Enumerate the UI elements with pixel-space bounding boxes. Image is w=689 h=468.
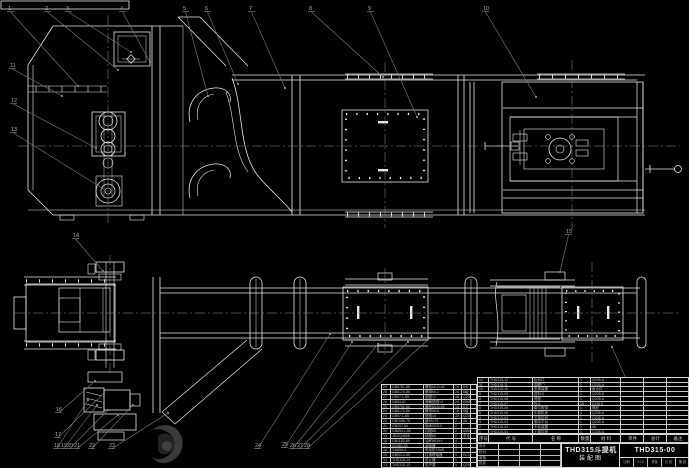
signature-cell	[520, 461, 541, 467]
leader-dot	[284, 87, 286, 89]
callout-number: 1	[8, 6, 11, 12]
scale-cell: 比例	[620, 458, 634, 468]
bom-header-cell: 名 称	[533, 435, 579, 443]
callout-number: 15	[566, 229, 572, 235]
bom-cell: 13	[382, 463, 391, 468]
leader-dot	[103, 392, 105, 394]
leader-dot	[102, 270, 104, 272]
callout-number: 22	[89, 443, 95, 449]
leader-dot	[407, 341, 409, 343]
callout-number: 16	[56, 407, 62, 413]
bom-cell: 防护罩	[424, 463, 454, 468]
leader-line	[59, 381, 96, 413]
leader-dot	[87, 399, 89, 401]
callout-number: 17	[55, 432, 61, 438]
callout-number: 9	[368, 6, 371, 12]
callout-number: 13	[11, 127, 17, 133]
drawing-number-box: THD315-00 比例1:10重量共 张第 张	[619, 444, 689, 467]
callout-number: 5	[183, 6, 186, 12]
callout-number: 25	[282, 442, 288, 448]
leader-dot	[559, 271, 561, 273]
leader-line	[14, 104, 97, 148]
title-area: THD315斗提机 装配图	[561, 444, 620, 467]
leader-dot	[77, 85, 79, 87]
title-block: 设计校对审核批准 THD315斗提机 装配图 THD315-00 比例1:10重…	[477, 443, 689, 468]
leader-line	[312, 12, 384, 77]
leader-dot	[429, 337, 431, 339]
leader-line	[560, 235, 569, 272]
leader-dot	[382, 76, 384, 78]
callout-number: 7	[249, 6, 252, 12]
bom-table-assemblies: 12THD315-12出料口1Q235-A11THD315-11观察门1Q235…	[477, 377, 689, 434]
leader-dot	[132, 404, 134, 406]
leader-dot	[61, 95, 63, 97]
leader-dot	[329, 333, 331, 335]
bom-header-cell: 材 料	[591, 435, 621, 443]
callout-number: 8	[309, 6, 312, 12]
bom-table-standard-parts: 29GB5782-86螺栓M12×40248.828GB6170-86螺母M12…	[381, 384, 477, 468]
bom-header-row: 序号代 号名 称数量材 料单件总计备注	[477, 434, 689, 443]
leader-dot	[237, 83, 239, 85]
callout-number: 28	[304, 443, 310, 449]
bom-cell: Q235-A	[462, 463, 471, 468]
callout-number: 23	[109, 443, 115, 449]
callout-number: 6	[205, 6, 208, 12]
bom-header-cell: 单件	[621, 435, 644, 443]
leader-dot	[351, 341, 353, 343]
leader-dot	[95, 147, 97, 149]
scale-cell: 1:10	[634, 458, 648, 468]
leader-line	[285, 342, 353, 448]
callout-number: 11	[10, 63, 16, 69]
leader-line	[58, 393, 105, 438]
leader-dot	[94, 380, 96, 382]
bom-cell: 1	[454, 463, 462, 468]
leader-line	[76, 239, 104, 271]
swirl-watermark	[152, 425, 183, 463]
leader-dot	[207, 95, 209, 97]
callout-number: 14	[73, 233, 79, 239]
drawing-number: THD315-00	[620, 444, 689, 457]
leader-dot	[167, 412, 169, 414]
callout-number: 18	[54, 443, 60, 449]
callout-number: 27	[297, 443, 303, 449]
leader-dot	[377, 343, 379, 345]
leader-dot	[611, 346, 613, 348]
leader-dot	[149, 61, 151, 63]
scale-strip: 比例1:10重量共 张第 张	[620, 457, 689, 468]
doc-type: 装配图	[562, 455, 620, 463]
callout-number: 10	[483, 6, 489, 12]
leader-dot	[107, 409, 109, 411]
callout-number: 21	[74, 443, 80, 449]
callout-number: 2	[45, 6, 48, 12]
bom-header-cell: 备注	[667, 435, 689, 443]
bom-header-cell: 总计	[644, 435, 667, 443]
leader-line	[208, 12, 239, 84]
leader-line	[252, 12, 286, 88]
cad-drawing-page: 1234567891011121314151617181920212223242…	[0, 0, 689, 468]
scale-cell: 重量	[648, 458, 662, 468]
leader-dot	[117, 69, 119, 71]
signature-cell	[541, 461, 561, 467]
leader-line	[486, 12, 537, 97]
scale-cell: 共 张	[662, 458, 676, 468]
leader-dot	[101, 187, 103, 189]
leader-dot	[117, 414, 119, 416]
leader-line	[371, 12, 418, 117]
leader-dot	[416, 116, 418, 118]
signature-cell	[499, 461, 520, 467]
bom-header-cell: 数量	[579, 435, 591, 443]
leader-line	[258, 334, 331, 449]
product-title: THD315斗提机	[562, 446, 620, 455]
frame-corner	[1, 1, 129, 9]
bom-header-cell: 序号	[478, 435, 489, 443]
callout-number: 20	[67, 443, 73, 449]
drawing-geometry	[1, 1, 682, 440]
leader-line	[11, 12, 79, 86]
bom-cell: THD315-13	[391, 463, 424, 468]
leader-line	[48, 12, 119, 70]
leader-line	[14, 133, 103, 188]
leader-line	[186, 12, 209, 96]
bom-header-cell: 代 号	[489, 435, 533, 443]
signature-grid: 设计校对审核批准	[478, 444, 561, 467]
callout-number: 4	[120, 6, 123, 12]
callout-number: 26	[290, 443, 296, 449]
scale-cell: 第 张	[676, 458, 689, 468]
leader-dot	[130, 51, 132, 53]
leader-dot	[535, 96, 537, 98]
callout-number: 24	[255, 443, 261, 449]
callout-number: 12	[11, 98, 17, 104]
leader-dot	[96, 404, 98, 406]
signature-cell: 批准	[478, 461, 499, 467]
callout-number: 3	[66, 6, 69, 12]
